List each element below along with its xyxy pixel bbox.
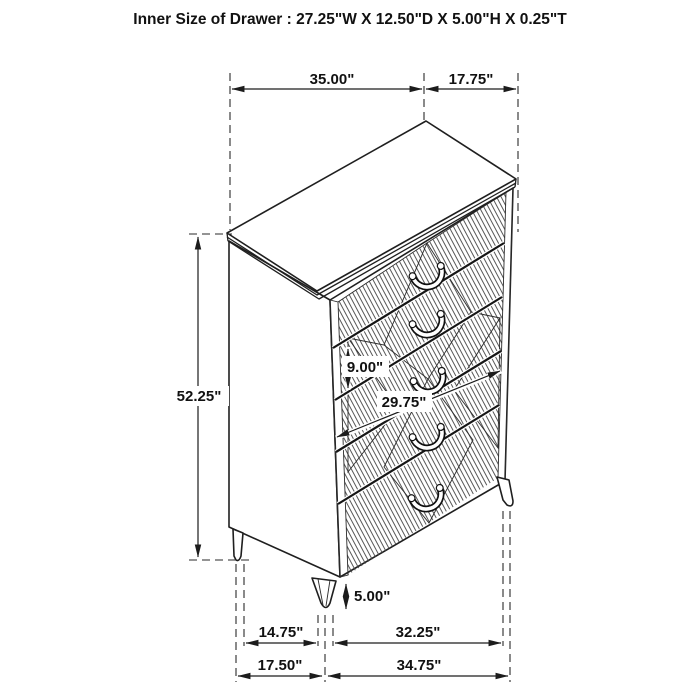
- dim-label-drawer-width: 29.75": [382, 394, 427, 411]
- dim-label-legspan-depth-inner: 14.75": [259, 624, 304, 641]
- dim-label-top-depth: 17.75": [449, 71, 494, 88]
- dim-legspan-width-inner: 32.25": [335, 624, 501, 643]
- back-right-leg: [497, 477, 513, 506]
- dim-label-legspan-width-outer: 34.75": [397, 657, 442, 674]
- front-center-leg: [312, 578, 336, 608]
- dim-label-leg-height: 5.00": [354, 588, 390, 605]
- dim-label-drawer-height: 9.00": [347, 359, 383, 376]
- dim-leg-height: 5.00": [346, 584, 390, 609]
- dim-label-overall-height: 52.25": [177, 388, 222, 405]
- dim-legspan-depth-outer: 17.50": [238, 657, 322, 676]
- dim-label-legspan-depth-outer: 17.50": [258, 657, 303, 674]
- dimension-diagram: Inner Size of Drawer : 27.25"W X 12.50"D…: [0, 0, 700, 700]
- dim-legspan-width-outer: 34.75": [328, 657, 508, 676]
- front-left-leg: [233, 529, 243, 561]
- diagram-svg: Inner Size of Drawer : 27.25"W X 12.50"D…: [0, 0, 700, 700]
- dim-legspan-depth-inner: 14.75": [246, 624, 316, 643]
- dim-label-top-width: 35.00": [310, 71, 355, 88]
- dim-label-legspan-width-inner: 32.25": [396, 624, 441, 641]
- page-title: Inner Size of Drawer : 27.25"W X 12.50"D…: [133, 11, 567, 28]
